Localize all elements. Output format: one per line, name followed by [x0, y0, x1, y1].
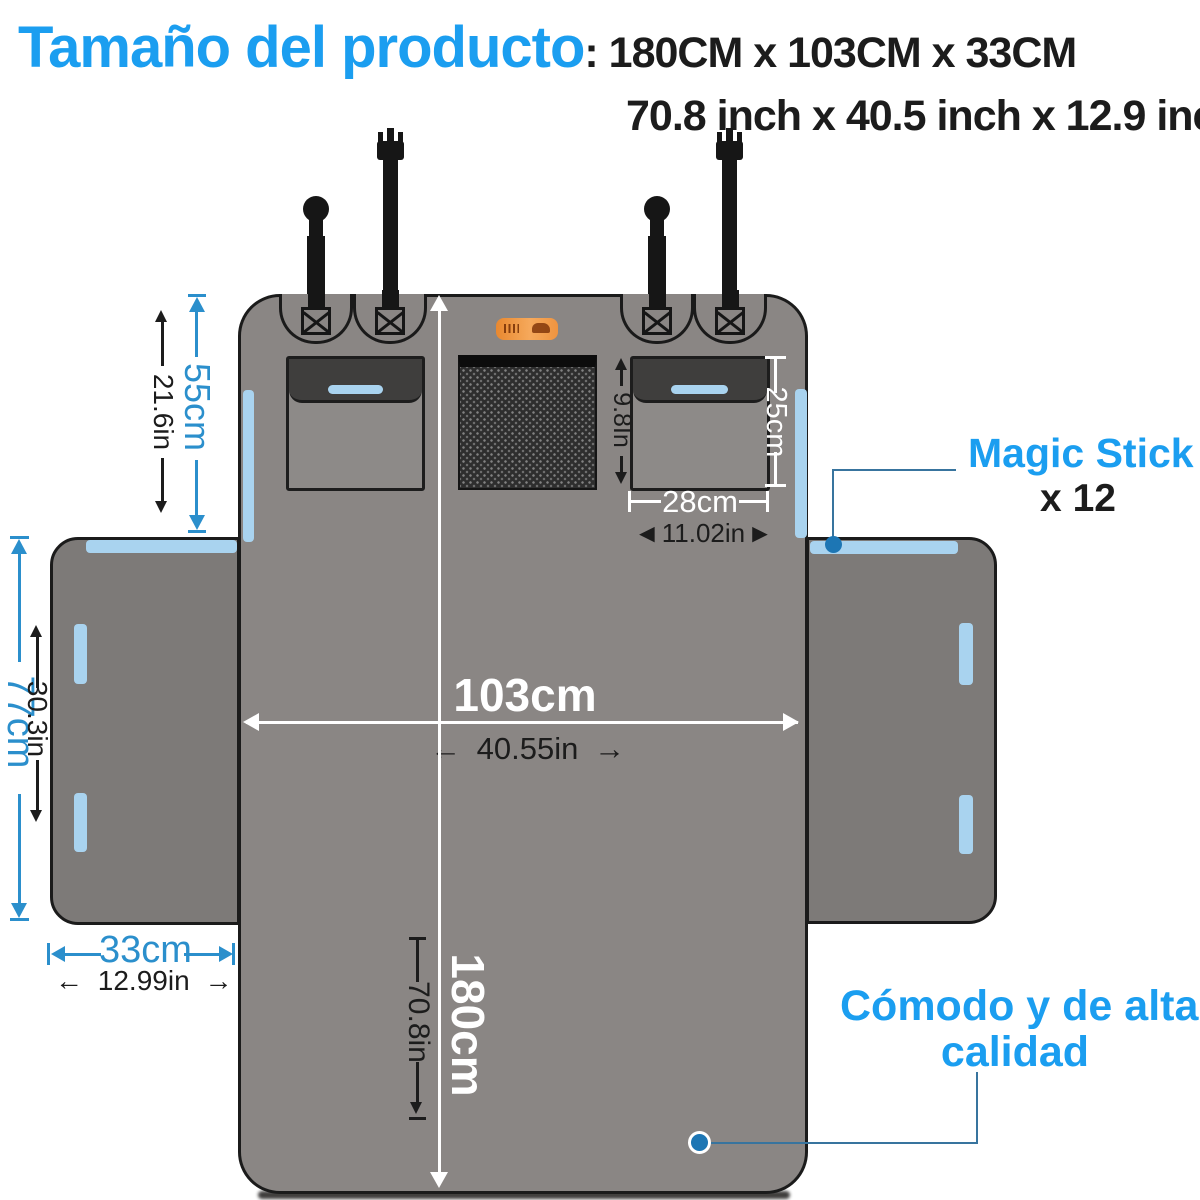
- dim-arrowhead: [783, 713, 799, 731]
- strap-webbing: [383, 158, 398, 298]
- logo-car-icon: [532, 323, 550, 333]
- buckle-prong-icon: [726, 128, 733, 142]
- arrow-left-glyph: ←: [430, 731, 461, 766]
- dim-tick: [765, 484, 786, 487]
- pocket-flap: [289, 359, 422, 403]
- arrow-right-solid-glyph: ►: [747, 518, 773, 548]
- arrow-left-solid-glyph: ◄: [634, 518, 660, 548]
- callout-line: [976, 1072, 978, 1144]
- velcro-strip: [671, 385, 728, 394]
- dim-arrowhead: [155, 501, 167, 513]
- dim-line-segment: [195, 460, 198, 518]
- velcro-strip: [959, 623, 973, 685]
- arrow-right-glyph: →: [594, 731, 625, 766]
- buckle-prong-icon: [387, 128, 394, 142]
- velcro-strip: [74, 624, 87, 684]
- velcro-strip: [795, 389, 807, 538]
- quality-label-line2: calidad: [840, 1028, 1190, 1077]
- dim-line-segment: [64, 953, 101, 956]
- stitch-x-box-icon: [715, 307, 745, 335]
- stitch-x-box-icon: [375, 307, 405, 335]
- size-cm-text: : 180CM x 103CM x 33CM: [584, 29, 1076, 78]
- logo-text-mark: [504, 324, 519, 333]
- callout-line: [832, 469, 956, 471]
- dim-tick: [47, 943, 50, 965]
- velcro-strip: [74, 793, 87, 852]
- dim-label-11.02in: ◄11.02in►: [634, 518, 766, 549]
- right-side-flap: [806, 537, 997, 924]
- dim-line-segment: [416, 1062, 419, 1104]
- dim-arrowhead: [410, 1102, 422, 1114]
- dim-line-segment: [774, 452, 777, 486]
- left-side-flap: [50, 537, 240, 925]
- dim-tick: [188, 530, 206, 533]
- dim-label-40.55in: ← 40.55in →: [430, 731, 620, 767]
- dim-label-180cm: 180cm: [448, 955, 488, 1095]
- size-inch-text: 70.8 inch x 40.5 inch x 12.9 inch: [626, 92, 1200, 141]
- right-storage-pocket: [630, 356, 770, 491]
- dim-line-segment: [36, 760, 39, 812]
- dim-line-segment: [18, 552, 21, 662]
- dim-tick: [409, 1117, 426, 1120]
- mesh-pocket: [458, 355, 597, 490]
- dim-line-segment: [161, 458, 164, 503]
- dim-arrowhead: [430, 295, 448, 311]
- dim-arrowhead: [189, 297, 205, 312]
- velcro-strip: [86, 540, 237, 553]
- dim-arrowhead: [11, 903, 27, 918]
- dim-label-9.8in: 9.8In: [604, 370, 640, 470]
- dim-tick: [766, 491, 769, 512]
- dim-label-28cm: 28cm: [650, 484, 750, 520]
- arrow-left-glyph: ←: [55, 965, 83, 996]
- dim-line-segment: [18, 794, 21, 906]
- arrow-right-glyph: →: [204, 965, 232, 996]
- callout-dot: [825, 536, 842, 553]
- velcro-strip: [328, 385, 383, 394]
- dim-arrowhead: [51, 946, 65, 962]
- dim-arrowhead: [243, 713, 259, 731]
- strap-webbing: [307, 236, 325, 298]
- dim-arrowhead: [30, 810, 42, 822]
- dim-line-segment: [739, 500, 768, 503]
- header: Tamaño del producto: 180CM x 103CM x 33C…: [18, 14, 1076, 81]
- dim-arrowhead: [219, 946, 233, 962]
- dim-label-55cm: 55cm: [177, 337, 217, 477]
- stitch-x-box-icon: [642, 307, 672, 335]
- brand-logo-patch: [496, 318, 558, 340]
- product-size-diagram: Tamaño del producto: 180CM x 103CM x 33C…: [0, 0, 1200, 1200]
- left-storage-pocket: [286, 356, 425, 491]
- magic-stick-count: x 12: [968, 477, 1188, 521]
- strap-webbing: [648, 236, 666, 298]
- pocket-flap: [633, 359, 767, 403]
- callout-line: [832, 469, 834, 541]
- dim-arrowhead: [615, 472, 627, 484]
- dim-label-103cm: 103cm: [430, 668, 620, 722]
- callout-line: [700, 1142, 978, 1144]
- velcro-strip: [243, 390, 254, 542]
- strap-webbing: [722, 158, 737, 298]
- dim-line-segment: [438, 309, 441, 1174]
- page-title: Tamaño del producto: [18, 14, 584, 81]
- dim-line-segment: [184, 953, 220, 956]
- magic-stick-label: Magic Stick: [968, 430, 1188, 477]
- dim-tick: [10, 918, 29, 921]
- dim-label-12.99in: ← 12.99in →: [55, 965, 225, 997]
- dim-tick: [232, 943, 235, 965]
- velcro-strip: [959, 795, 973, 854]
- callout-dot: [688, 1131, 711, 1154]
- dim-arrowhead: [189, 515, 205, 530]
- dim-arrowhead: [430, 1172, 448, 1188]
- stitch-x-box-icon: [301, 307, 331, 335]
- quality-label-line1: Cómodo y de alta: [840, 982, 1190, 1031]
